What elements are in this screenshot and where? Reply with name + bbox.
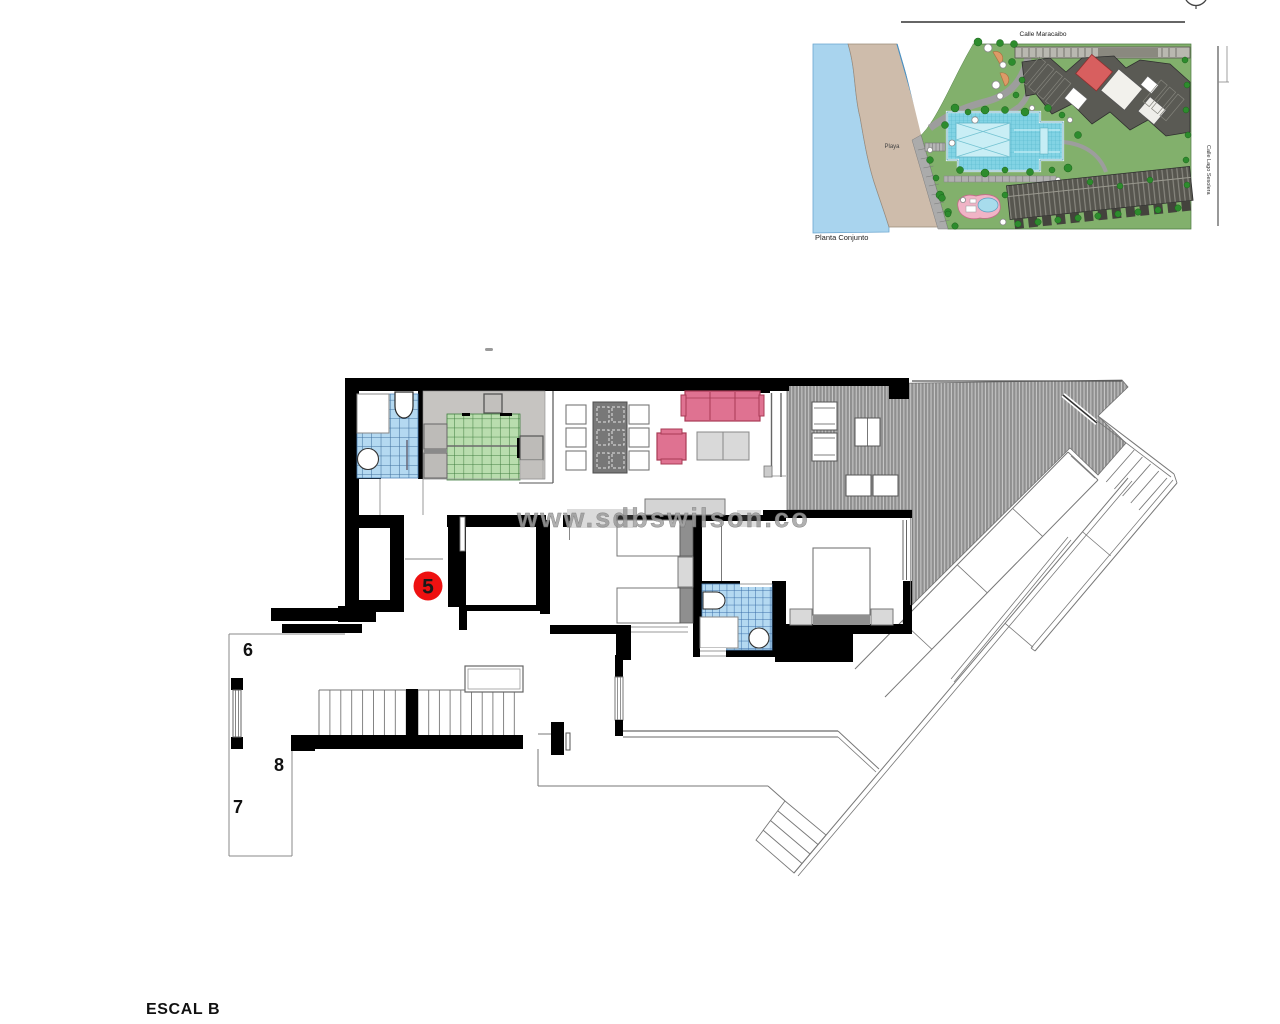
svg-text:5: 5 [422, 576, 434, 599]
svg-text:Playa: Playa [884, 144, 900, 150]
svg-text:6: 6 [243, 640, 253, 660]
svg-text:Calle Maracaibo: Calle Maracaibo [1020, 31, 1067, 38]
svg-text:Planta Conjunto: Planta Conjunto [815, 233, 868, 242]
svg-text:Calle Lago Sesolera: Calle Lago Sesolera [1205, 145, 1211, 195]
svg-text:7: 7 [233, 797, 243, 817]
svg-text:8: 8 [274, 755, 284, 775]
svg-text:www.sdbswilson.co: www.sdbswilson.co [516, 503, 810, 533]
svg-text:ESCAL B: ESCAL B [146, 1001, 220, 1018]
